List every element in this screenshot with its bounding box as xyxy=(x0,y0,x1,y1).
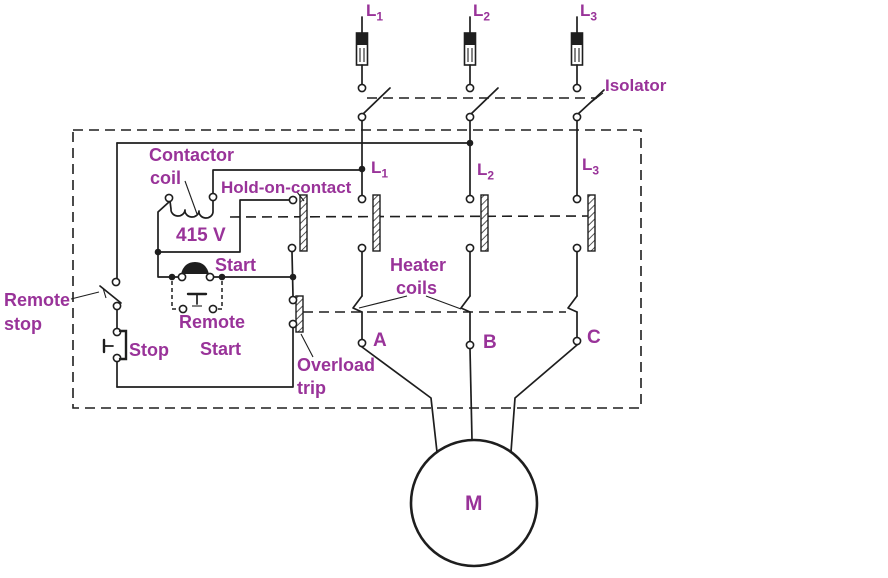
remote-stop-contact xyxy=(71,278,121,309)
stop-button xyxy=(104,328,126,361)
contactor-coil-label-line1: Contactor xyxy=(149,146,234,164)
junction-start-overload xyxy=(290,274,297,281)
terminal-label-c: C xyxy=(587,328,601,347)
terminal-label-a: A xyxy=(373,331,387,350)
remote-stop-label-leader xyxy=(71,292,99,299)
phase-label-l3-top: L3 xyxy=(580,2,597,22)
isolator-switch-l1 xyxy=(363,88,390,114)
contactor-coil-label-leader xyxy=(185,181,197,214)
main-contact-l3 xyxy=(573,195,595,252)
heater-coil-c xyxy=(568,252,581,345)
fuse-l1 xyxy=(357,33,368,65)
heater-coil-b xyxy=(461,252,474,349)
heater-coils-label-line1: Heater xyxy=(390,256,446,274)
phase-label-l1-top: L1 xyxy=(366,2,383,22)
fuse-l2 xyxy=(465,33,476,65)
fuse-l3 xyxy=(572,33,583,65)
junction-l2-control xyxy=(467,140,474,147)
remote-start-label-line1: Remote xyxy=(179,313,245,331)
remote-stop-label-line1: Remote xyxy=(4,291,70,309)
isolator-label: Isolator xyxy=(605,77,666,94)
contactor-coil-label-line2: coil xyxy=(150,169,181,187)
start-button xyxy=(178,262,213,281)
remote-stop-label-line2: stop xyxy=(4,315,42,333)
isolator-switch-l2 xyxy=(471,88,498,114)
junction-remote-start-left xyxy=(169,274,176,281)
phase-label-l2-top: L2 xyxy=(473,2,490,22)
contactor-mechanical-link xyxy=(230,216,588,217)
heater-coils-label-line2: coils xyxy=(396,279,437,297)
dol-starter-circuit-diagram: L1 L2 L3 Isolator Contactor coil Hold-on… xyxy=(0,0,888,578)
remote-start-label-line2: Start xyxy=(200,340,241,358)
overload-label-leader xyxy=(301,334,313,357)
circuit-diagram-svg xyxy=(0,0,888,578)
main-contact-l2 xyxy=(466,195,488,252)
start-label: Start xyxy=(215,256,256,274)
terminal-label-b: B xyxy=(483,333,497,352)
hold-on-contact xyxy=(288,192,307,252)
phase-label-l1-inner: L1 xyxy=(371,159,388,179)
hold-on-contact-label: Hold-on-contact xyxy=(221,179,351,196)
main-contact-l1 xyxy=(358,195,380,252)
junction-coil-holdon xyxy=(155,249,162,256)
motor-label: M xyxy=(465,493,483,514)
stop-label: Stop xyxy=(129,341,169,359)
overload-trip-label-line1: Overload xyxy=(297,356,375,374)
heater-coil-a xyxy=(353,252,366,347)
remote-start-button xyxy=(172,281,222,313)
phase-label-l2-inner: L2 xyxy=(477,161,494,181)
overload-trip-label-line2: trip xyxy=(297,379,326,397)
phase-label-l3-inner: L3 xyxy=(582,156,599,176)
junction-l1-coil xyxy=(359,166,366,173)
motor xyxy=(362,345,577,566)
coil-voltage-label: 415 V xyxy=(176,226,226,245)
